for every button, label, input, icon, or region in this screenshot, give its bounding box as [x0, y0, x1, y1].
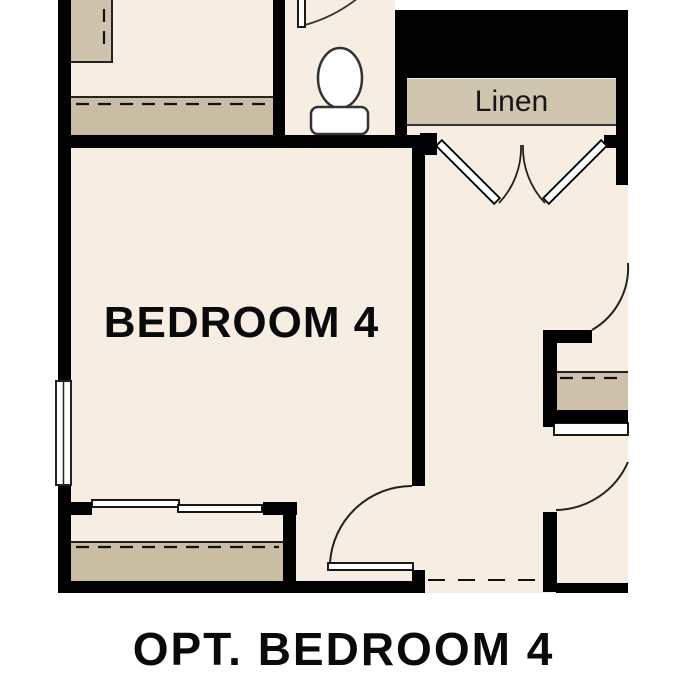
toilet-bowl	[318, 48, 362, 108]
bedroom-door-swing-arc	[330, 486, 412, 563]
bathroom-door-swing-arc	[305, 0, 358, 25]
linen-door-right-leaf	[543, 140, 607, 204]
bedroom-4-room-label: BEDROOM 4	[71, 298, 412, 348]
right-upper-door-swing-arc	[592, 263, 628, 330]
right-closet-door-leaf	[554, 423, 628, 435]
bypass-door-left-panel	[92, 500, 179, 507]
right-lower-door-swing-arc	[556, 462, 628, 510]
floorplan-canvas: Linen BEDROOM 4 OPT. BEDROOM 4	[0, 0, 687, 687]
linen-room-label: Linen	[407, 79, 616, 124]
plan-caption: OPT. BEDROOM 4	[0, 622, 687, 676]
bypass-door-right-panel	[178, 505, 262, 512]
linen-door-left-arc	[499, 145, 521, 203]
bathroom-door-leaf	[298, 0, 305, 27]
linen-door-left-leaf	[436, 140, 500, 204]
linen-door-right-arc	[523, 145, 545, 203]
toilet-tank	[311, 107, 368, 134]
bedroom-door-leaf	[328, 563, 413, 570]
